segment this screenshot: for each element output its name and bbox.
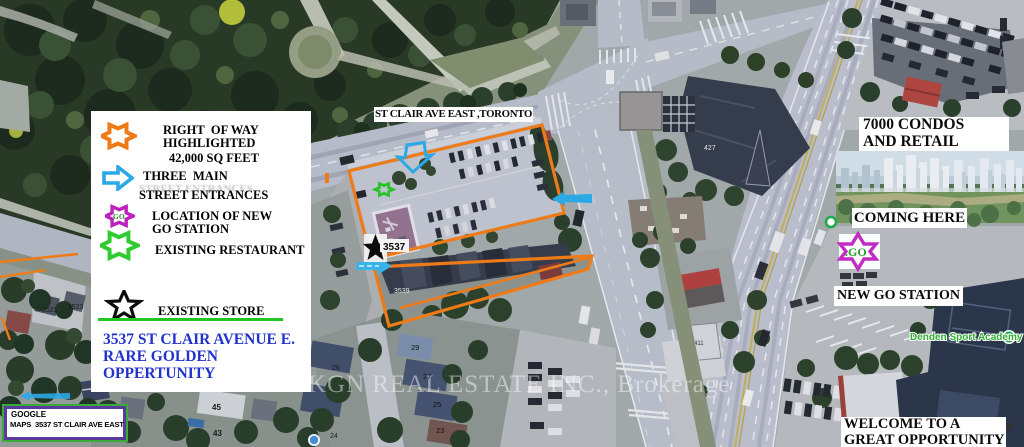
svg-text:Denden Sport Academy: Denden Sport Academy — [910, 332, 1023, 343]
svg-text:3539: 3539 — [394, 288, 410, 295]
svg-text:.GO: .GO — [845, 245, 867, 259]
svg-text:43: 43 — [213, 429, 222, 438]
svg-text:27: 27 — [423, 372, 431, 381]
svg-text:427: 427 — [704, 145, 716, 152]
svg-text:GO: GO — [113, 212, 125, 221]
svg-text:29: 29 — [411, 343, 419, 352]
svg-text:23: 23 — [436, 426, 444, 435]
svg-text:3523: 3523 — [68, 304, 84, 311]
svg-text:25: 25 — [433, 400, 441, 409]
svg-text:45: 45 — [212, 403, 221, 412]
svg-text:KGN REAL ESTATE INC., Brokerag: KGN REAL ESTATE INC., Brokerage — [308, 371, 730, 398]
svg-text:3521: 3521 — [42, 307, 58, 314]
svg-text:3537: 3537 — [383, 242, 406, 253]
